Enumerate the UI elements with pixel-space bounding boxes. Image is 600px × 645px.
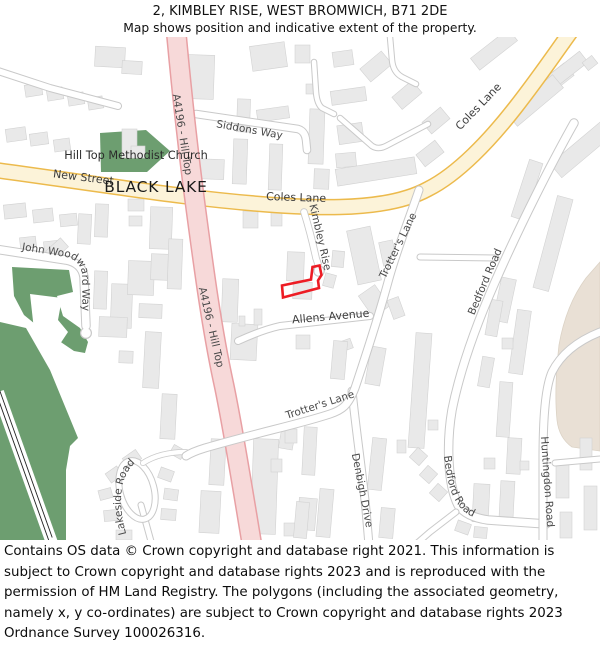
page-subtitle: Map shows position and indicative extent…	[0, 20, 600, 36]
copyright-notice: Contains OS data © Crown copyright and d…	[4, 542, 597, 645]
map-header: 2, KIMBLEY RISE, WEST BROMWICH, B71 2DE …	[0, 3, 600, 36]
poi-label-church: Hill Top Methodist Church	[64, 149, 208, 162]
page-title: 2, KIMBLEY RISE, WEST BROMWICH, B71 2DE	[0, 3, 600, 20]
map-canvas: A4196 - Hill Top A4196 - Hill Top Siddon…	[0, 37, 600, 540]
place-label-black-lake: BLACK LAKE	[104, 178, 207, 196]
road-coles-stub	[420, 257, 496, 258]
